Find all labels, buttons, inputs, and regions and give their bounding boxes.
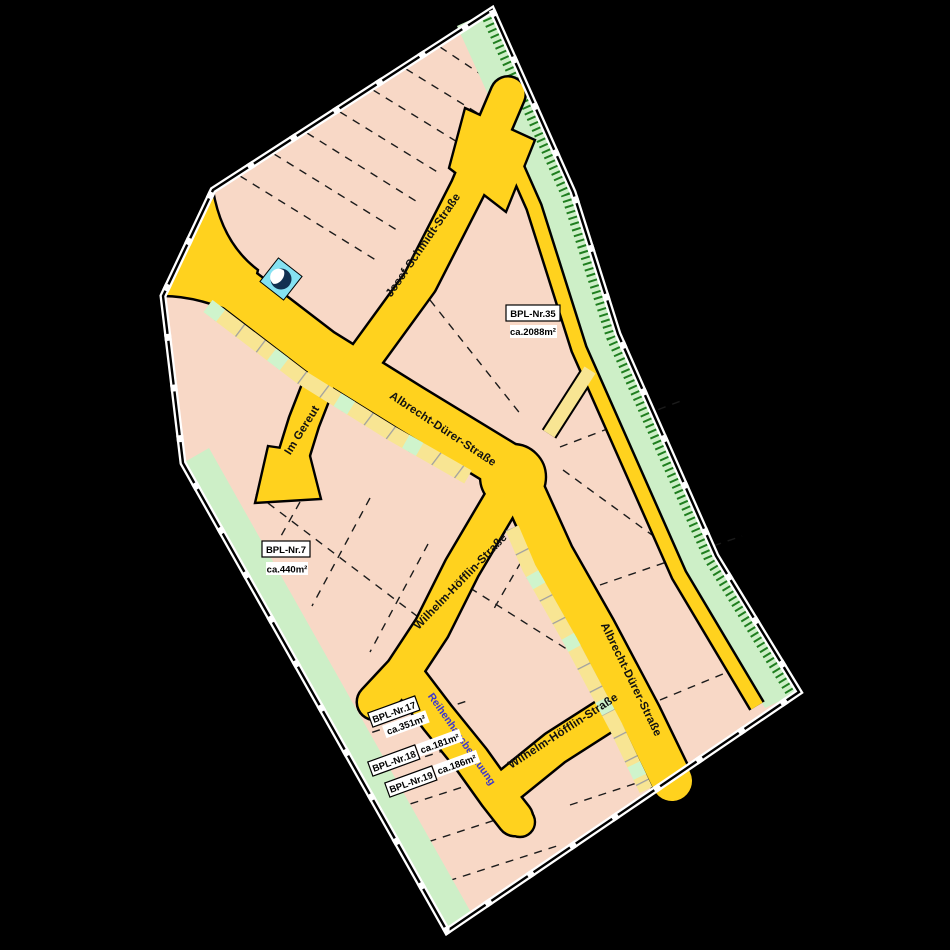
parcel-id-text: BPL-Nr.7 [266,545,306,556]
parcel-area-text: ca.2088m² [510,327,556,338]
parcel-id-text: BPL-Nr.35 [510,309,556,320]
development-plan-map: Josef-Schmidt-Straße Albrecht-Dürer-Stra… [0,0,950,950]
parcel-label-35: BPL-Nr.35 ca.2088m² [506,305,560,338]
parcel-area-text: ca.440m² [267,565,308,576]
plan-canvas: Josef-Schmidt-Straße Albrecht-Dürer-Stra… [0,0,950,950]
